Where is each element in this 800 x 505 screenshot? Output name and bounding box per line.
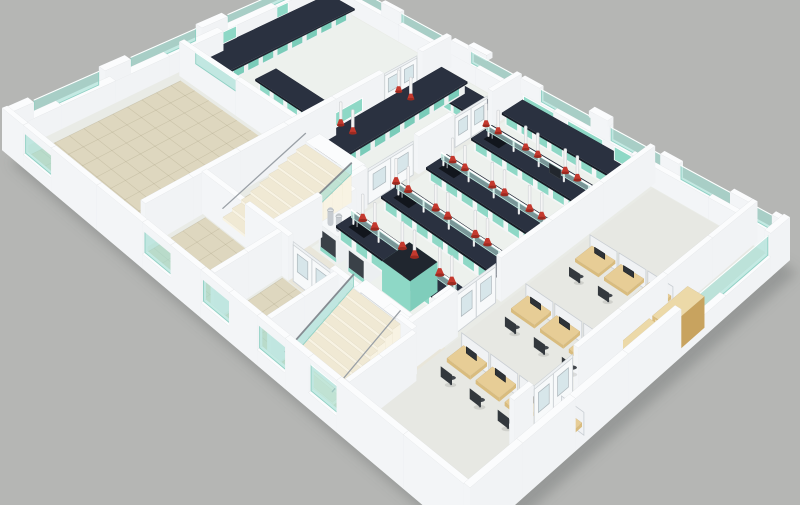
fume-extractor-10-hood-mouth — [494, 132, 502, 135]
fume-extractor-5-hood-mouth — [444, 217, 453, 220]
fume-extractor-9-hood-mouth — [538, 217, 546, 220]
wall-w2-c — [488, 89, 493, 126]
fume-extractor-12-hood-mouth — [561, 172, 569, 175]
fume-extractor-7-hood-mouth — [449, 161, 457, 164]
fume-extractor-8-hood-mouth — [488, 186, 496, 189]
fume-extractor-4-hood-mouth — [392, 182, 400, 185]
wall-corridor-a — [288, 234, 293, 281]
fume-extractor-1-hood-mouth — [370, 228, 379, 231]
fume-extractor-13-hood-mouth — [337, 124, 345, 127]
fume-extractor-12-hood-mouth — [573, 179, 581, 182]
floorplan-stage — [0, 0, 800, 505]
fume-extractor-14-hood-mouth — [395, 91, 402, 94]
lab-floorplan-3d-render — [0, 0, 800, 505]
fume-extractor-3-hood-mouth — [447, 282, 456, 285]
fume-extractor-6-hood-mouth — [471, 235, 480, 238]
fume-extractor-7-hood-mouth — [461, 168, 469, 171]
fume-extractor-10-hood-mouth — [482, 125, 489, 128]
fume-extractor-11-hood-mouth — [522, 148, 530, 151]
fume-extractor-14-hood-mouth — [407, 98, 414, 101]
wall-w2-b — [414, 134, 419, 175]
fume-extractor-9-hood-mouth — [525, 209, 533, 212]
fume-extractor-2-hood-mouth — [398, 247, 407, 250]
wall-w5-b — [497, 255, 502, 302]
fume-extractor-4-hood-mouth — [404, 190, 412, 193]
fume-hood-1-exhaust-cylinder-top — [327, 209, 333, 211]
fume-extractor-8-hood-mouth — [500, 193, 508, 196]
fume-extractor-3-hood-mouth — [435, 273, 444, 276]
fume-hood-1-exhaust-cylinder-top — [336, 215, 342, 217]
fume-extractor-6-hood-mouth — [483, 243, 492, 246]
fume-extractor-1-hood-mouth — [358, 219, 367, 222]
fume-extractor-13-hood-mouth — [349, 132, 357, 135]
fume-extractor-2-hood-mouth — [410, 256, 419, 259]
fume-extractor-11-hood-mouth — [534, 155, 542, 158]
fume-extractor-5-hood-mouth — [432, 208, 440, 211]
